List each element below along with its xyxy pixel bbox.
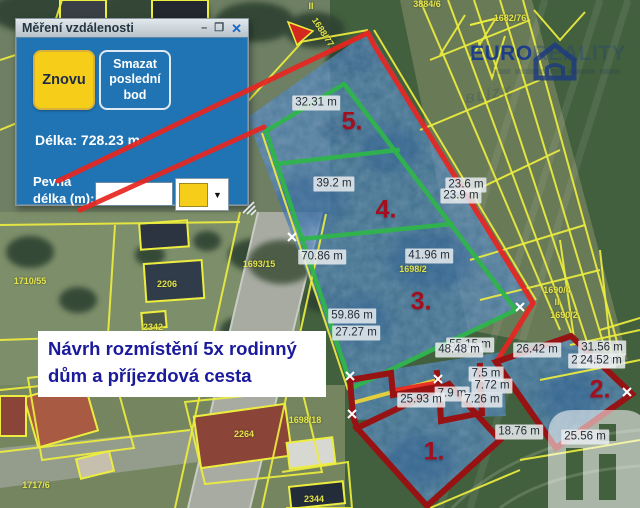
length-readout: Délka: 728.23 m — [35, 132, 140, 148]
maximize-icon[interactable]: ❐ — [214, 23, 224, 34]
close-icon[interactable]: ✕ — [231, 23, 242, 34]
color-dropdown[interactable]: ▼ — [175, 178, 229, 211]
proposal-note: Návrh rozmístění 5x rodinný dům a příjez… — [38, 331, 326, 397]
brand-light: REALITY — [533, 42, 626, 65]
again-button[interactable]: Znovu — [33, 50, 95, 110]
watermark-text: EUROREALITY — [470, 42, 640, 66]
fixed-length-label: Pevná délka (m): — [33, 174, 95, 208]
fixed-length-input[interactable] — [95, 182, 173, 206]
dialog-titlebar[interactable]: Měření vzdálenosti – ❐ ✕ — [16, 19, 248, 37]
dialog-title: Měření vzdálenosti — [22, 21, 194, 35]
minimize-icon[interactable]: – — [201, 23, 207, 34]
watermark-house-bottom — [548, 410, 640, 508]
brand-bold: EURO — [470, 42, 533, 65]
measure-distance-dialog: Měření vzdálenosti – ❐ ✕ Znovu Smazat po… — [15, 18, 249, 206]
map-application-window: 3884/6II1688/771682/761690/4II1690/21710… — [0, 0, 640, 508]
note-line2: dům a příjezdová cesta — [48, 365, 252, 386]
watermark-logo: EUROREALITY BLÍZK — [470, 40, 640, 91]
delete-last-point-button[interactable]: Smazat poslední bod — [99, 50, 171, 110]
dialog-body: Znovu Smazat poslední bod Délka: 728.23 … — [16, 37, 248, 205]
dropdown-arrow-icon: ▼ — [213, 190, 222, 200]
note-line1: Návrh rozmístění 5x rodinný — [48, 338, 297, 359]
color-swatch — [179, 183, 208, 207]
